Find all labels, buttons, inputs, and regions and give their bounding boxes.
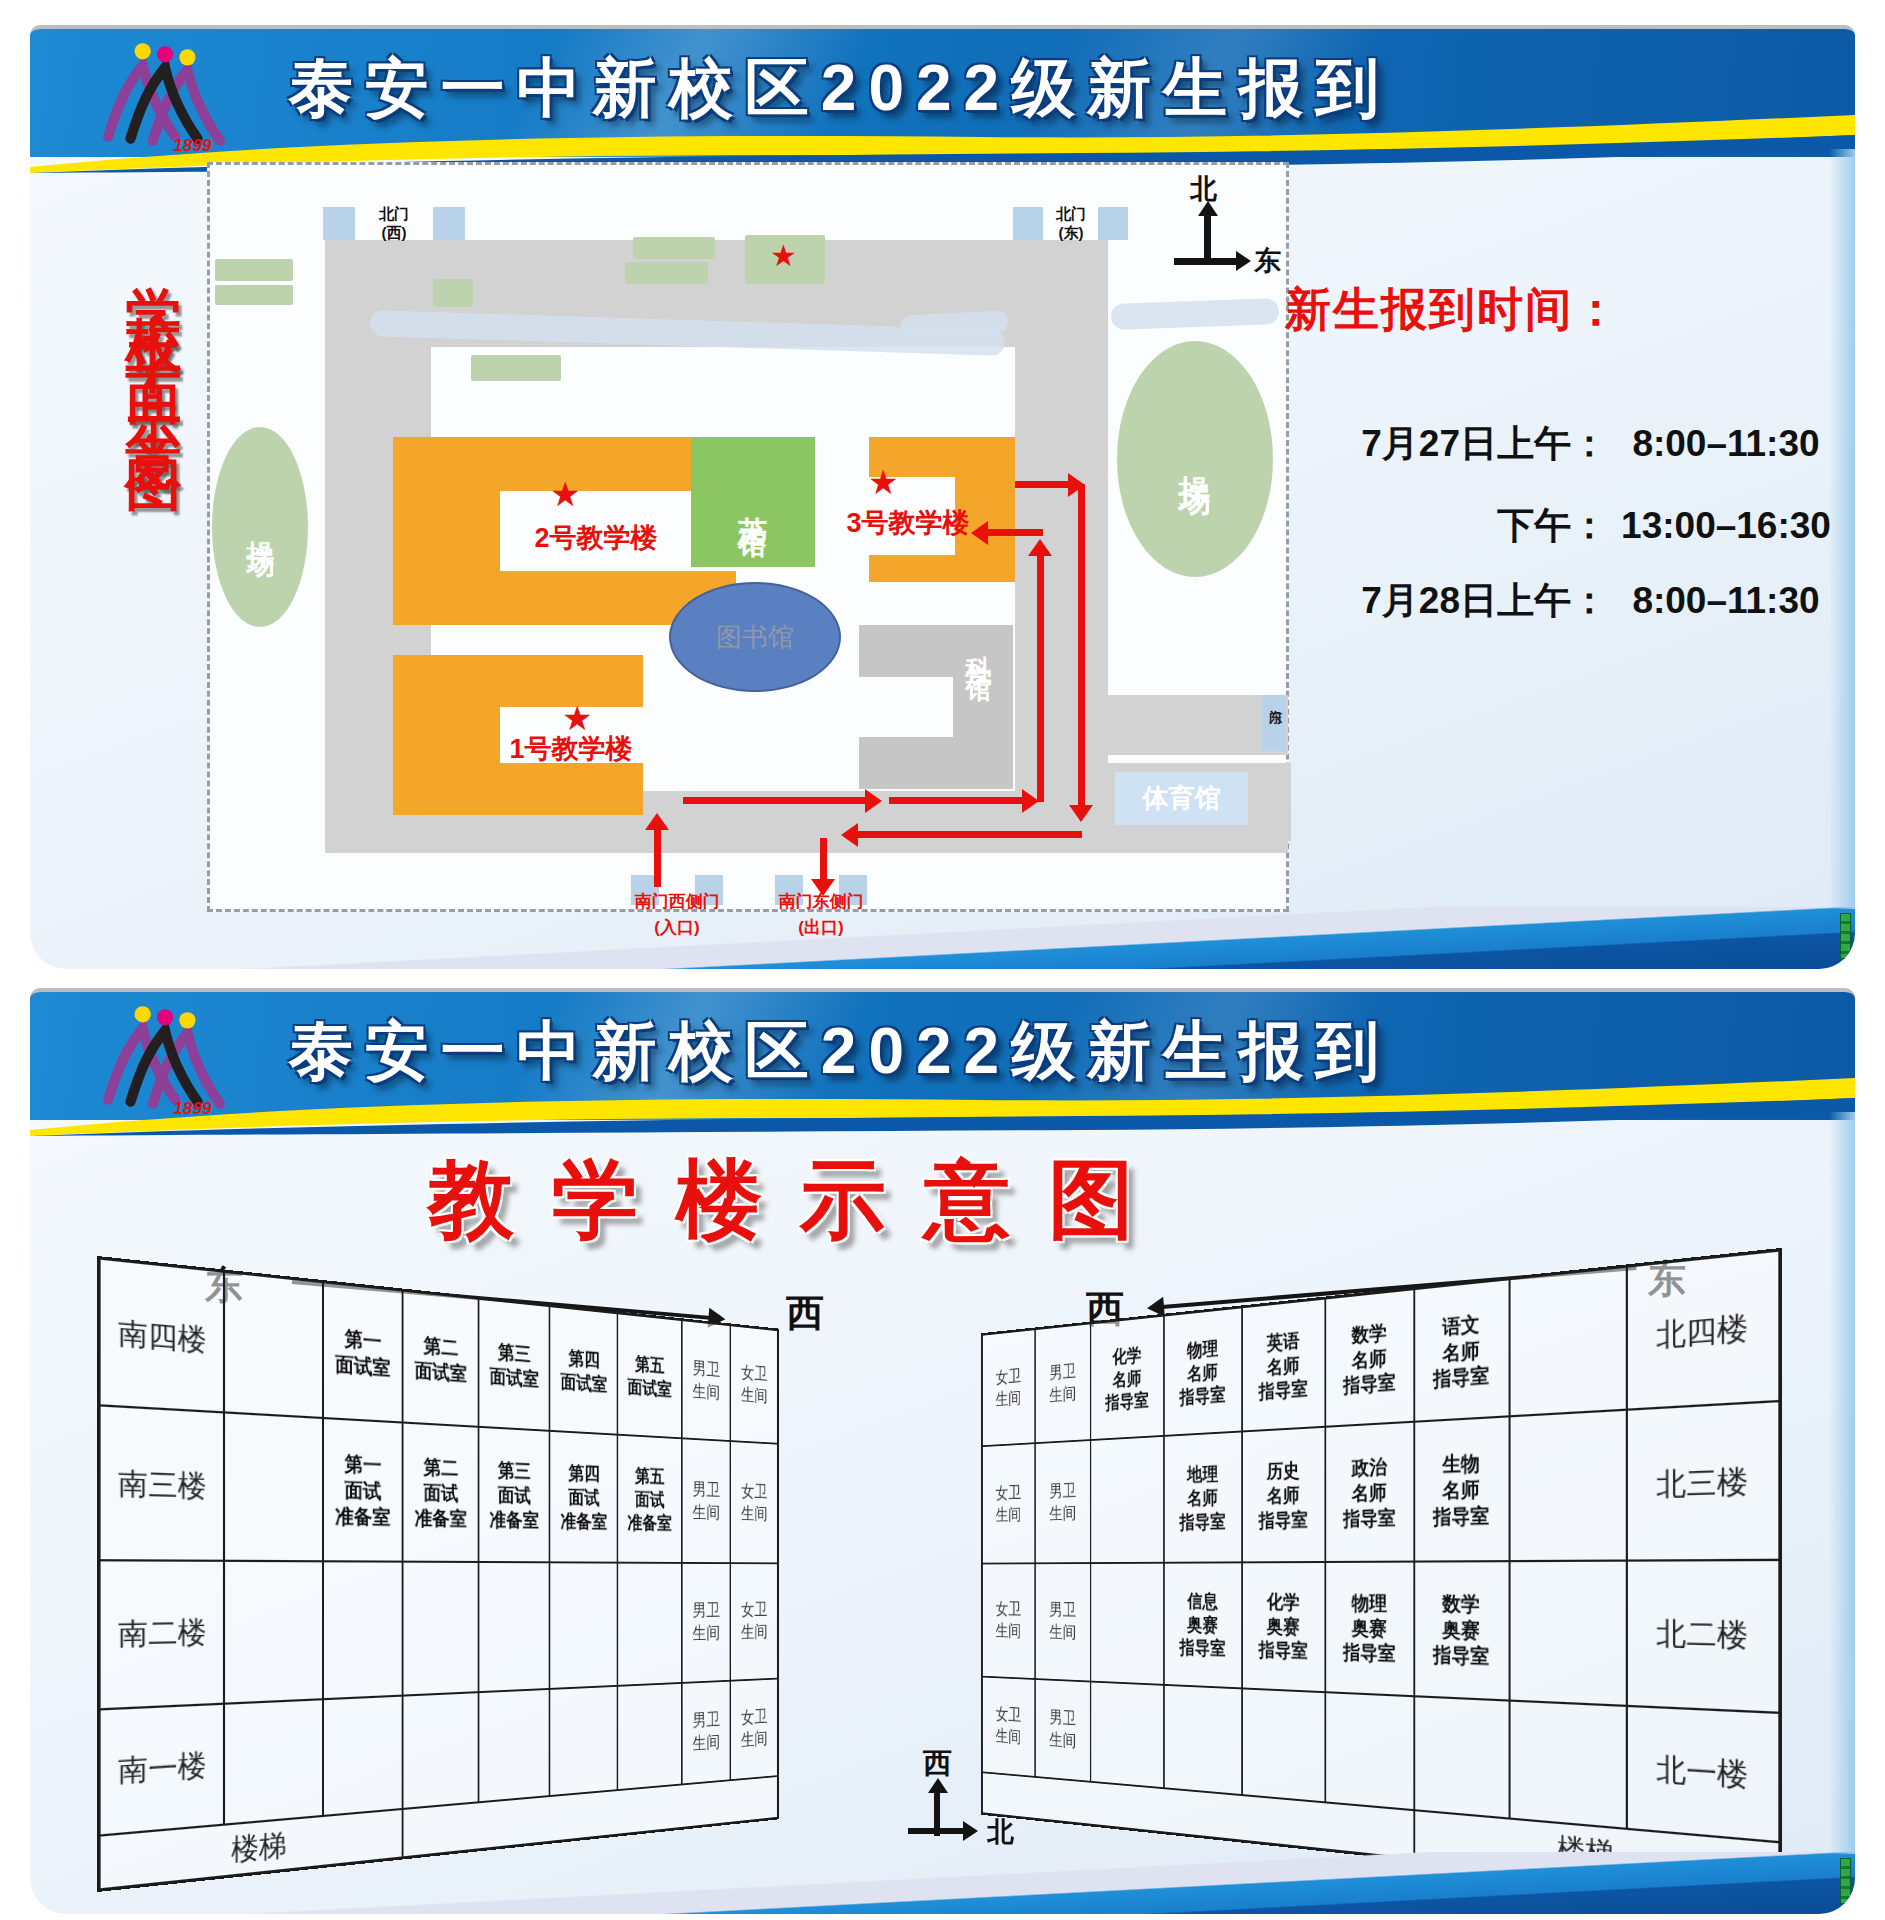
- table-cell: [224, 1412, 322, 1561]
- table-cell: 英语 名师 指导室: [1242, 1299, 1325, 1432]
- science-hall: [859, 737, 1013, 789]
- table-cell: 物理 奥赛 指导室: [1325, 1562, 1414, 1697]
- building-1: [500, 763, 643, 815]
- table-cell: 化学 名师 指导室: [1091, 1316, 1164, 1440]
- schedule-row: 7月27日上午： 8:00–11:30: [1288, 419, 1848, 469]
- table-cell: [1509, 1701, 1627, 1829]
- route-arrow: [889, 797, 1022, 804]
- compass-east-label: 东: [1254, 243, 1281, 279]
- teaching-building-board: 1899 泰安一中新校区2022级新生报到 教学楼示意图 东 西 西 东 南四楼…: [30, 988, 1855, 1914]
- header-swoosh: [30, 1076, 1855, 1136]
- table-cell: 历史 名师 指导室: [1242, 1427, 1325, 1563]
- route-arrow-exit: [820, 838, 827, 881]
- table-cell: 男卫 生间: [682, 1438, 731, 1563]
- table-cell: 物理 名师 指导室: [1164, 1307, 1242, 1436]
- table-cell: 第二 面试 准备室: [403, 1423, 479, 1562]
- table-cell: 男卫 生间: [1035, 1440, 1091, 1563]
- table-cell: 信息 奥赛 指导室: [1164, 1562, 1242, 1688]
- playground-east: 操场: [1117, 341, 1273, 577]
- table-cell: [1414, 1696, 1509, 1818]
- route-arrow-into-building3: [988, 529, 1043, 536]
- route-arrow-down: [1078, 484, 1085, 805]
- playground-west-label: 操场: [241, 519, 279, 536]
- compass-right-arrow-icon: [1174, 258, 1236, 265]
- table-cell: [323, 1561, 403, 1699]
- table-cell: 女卫 生间: [982, 1563, 1035, 1679]
- schedule-time: 8:00–11:30: [1608, 580, 1844, 622]
- table-cell: 女卫 生间: [731, 1563, 778, 1681]
- west-label-left: 西: [786, 1288, 824, 1339]
- route-arrowhead: [865, 789, 882, 813]
- schedule-row: 7月28日上午： 8:00–11:30: [1288, 576, 1848, 626]
- route-arrow: [858, 831, 1082, 838]
- compass-up-arrow-icon: [1198, 201, 1218, 216]
- table-cell: [224, 1699, 322, 1824]
- star-icon: ★: [550, 477, 580, 511]
- map-side-title: 学校平面示意图: [116, 241, 192, 901]
- table-cell: 男卫 生间: [682, 1681, 731, 1785]
- table-cell: 男卫 生间: [1035, 1323, 1091, 1443]
- board-footer: [30, 1852, 1855, 1914]
- route-arrow-up: [1037, 555, 1044, 802]
- table-cell: 女卫 生间: [731, 1325, 778, 1443]
- river: [1111, 298, 1280, 330]
- green-block: [433, 279, 473, 307]
- table-cell: [1091, 1563, 1164, 1685]
- green-block: [625, 262, 708, 284]
- table-cell: 语文 名师 指导室: [1414, 1279, 1509, 1422]
- table-cell: 第一 面试室: [323, 1282, 403, 1422]
- table-cell: 北二楼: [1627, 1560, 1779, 1713]
- star-icon: ★: [770, 241, 797, 271]
- science-hall-label: 科学馆: [962, 635, 997, 662]
- table-cell: [617, 1563, 681, 1686]
- building-1-label: 1号教学楼: [481, 731, 661, 767]
- schedule-time: 8:00–11:30: [1608, 423, 1844, 465]
- table-cell: [1091, 1436, 1164, 1563]
- art-hall: 艺术馆: [691, 437, 815, 567]
- star-icon: ★: [562, 701, 592, 735]
- table-cell: 第一 面试 准备室: [323, 1418, 403, 1562]
- board-header: 1899 泰安一中新校区2022级新生报到: [30, 992, 1855, 1120]
- table-cell: [1325, 1692, 1414, 1810]
- star-icon: ★: [868, 465, 898, 499]
- table-cell: [478, 1562, 549, 1692]
- gymnasium-label: 体育馆: [1143, 781, 1221, 816]
- east-gate: [1262, 695, 1286, 751]
- green-block: [471, 355, 561, 381]
- table-cell: 北四楼: [1627, 1250, 1779, 1409]
- table-cell: 男卫 生间: [1035, 1563, 1091, 1681]
- art-hall-label: 艺术馆: [733, 493, 773, 510]
- table-cell: 地理 名师 指导室: [1164, 1431, 1242, 1562]
- compass-north-label: 北: [987, 1814, 1014, 1850]
- route-arrowhead: [645, 813, 669, 830]
- table-cell: 北一楼: [1627, 1706, 1779, 1842]
- table-cell: [1509, 1267, 1627, 1417]
- table-cell: 第四 面试室: [550, 1306, 618, 1434]
- table-cell: 南四楼: [99, 1259, 224, 1413]
- table-cell: 第三 面试室: [478, 1299, 549, 1431]
- route-arrowhead: [1028, 539, 1052, 556]
- table-cell: 男卫 生间: [682, 1563, 731, 1683]
- table-cell: [478, 1689, 549, 1802]
- library: 图书馆: [669, 582, 841, 692]
- table-cell: [1509, 1561, 1627, 1706]
- table-cell: 第五 面试室: [617, 1313, 681, 1438]
- route-arrowhead: [811, 879, 835, 896]
- table-cell: 女卫 生间: [982, 1443, 1035, 1563]
- route-arrowhead: [971, 521, 988, 545]
- table-cell: 女卫 生间: [982, 1329, 1035, 1446]
- table-cell: 生物 名师 指导室: [1414, 1416, 1509, 1561]
- north-east-gate-label: 北门 (东): [1037, 205, 1105, 243]
- building-2-label: 2号教学楼: [506, 520, 686, 556]
- table-cell: 南一楼: [99, 1704, 224, 1836]
- schedule-title: 新生报到时间：: [1285, 279, 1855, 341]
- table-cell: [550, 1562, 618, 1689]
- table-cell: 南三楼: [99, 1405, 224, 1560]
- route-arrow-out-building3: [1015, 481, 1068, 488]
- table-cell: 数学 奥赛 指导室: [1414, 1561, 1509, 1700]
- table-cell: 女卫 生间: [731, 1441, 778, 1563]
- table-cell: [403, 1692, 479, 1809]
- table-cell: 第四 面试 准备室: [550, 1431, 618, 1563]
- table-cell: [224, 1561, 322, 1704]
- compass-right-arrow-icon: [963, 1821, 978, 1841]
- green-bar: [1840, 913, 1851, 959]
- road-east-gate-stub: [1108, 695, 1288, 755]
- building-2: [393, 437, 500, 625]
- compass-right-arrow-icon: [908, 1828, 963, 1834]
- table-cell: 男卫 生间: [1035, 1679, 1091, 1782]
- table-cell: [224, 1272, 322, 1418]
- campus-map: ★ 北门 (西) 北门 (东) 操场 操场 ★ 2号教学楼 艺术馆 ★ 3号教学…: [207, 162, 1289, 912]
- table-cell: 数学 名师 指导室: [1325, 1289, 1414, 1427]
- route-arrowhead: [841, 823, 858, 847]
- table-cell: [1091, 1682, 1164, 1789]
- table-cell: 女卫 生间: [731, 1679, 778, 1781]
- table-cell: 第三 面试 准备室: [478, 1427, 549, 1563]
- table-cell: [1164, 1685, 1242, 1795]
- board-header: 1899 泰安一中新校区2022级新生报到: [30, 29, 1855, 157]
- table-cell: [617, 1683, 681, 1790]
- compass-right-arrow-icon: [1236, 251, 1251, 271]
- route-arrow: [683, 797, 865, 804]
- table-cell: 化学 奥赛 指导室: [1242, 1562, 1325, 1692]
- playground-east-label: 操场: [1173, 449, 1217, 468]
- table-cell: 北三楼: [1627, 1401, 1779, 1561]
- table-cell: [550, 1686, 618, 1796]
- north-west-gate: [323, 207, 355, 240]
- campus-map-board: 1899 泰安一中新校区2022级新生报到 学校平面示意图 ★ 北门: [30, 25, 1855, 969]
- table-cell: [403, 1562, 479, 1696]
- schedule-time: 13:00–16:30: [1608, 505, 1844, 547]
- south-building-table: 南四楼第一 面试室第二 面试室第三 面试室第四 面试室第五 面试室男卫 生间女卫…: [97, 1256, 779, 1892]
- green-block: [633, 237, 715, 259]
- library-label: 图书馆: [716, 620, 794, 655]
- route-arrowhead: [1069, 805, 1093, 822]
- green-block: [215, 285, 293, 305]
- table-cell: 第五 面试 准备室: [617, 1435, 681, 1563]
- table-cell: 男卫 生间: [682, 1320, 731, 1441]
- schedule-label: 7月27日上午：: [1288, 419, 1608, 469]
- diagram-title: 教学楼示意图: [210, 1142, 1390, 1259]
- table-cell: [323, 1696, 403, 1816]
- north-west-gate: [433, 207, 465, 240]
- table-cell: 女卫 生间: [982, 1677, 1035, 1777]
- schedule-label: 下午：: [1288, 501, 1608, 551]
- table-cell: 政治 名师 指导室: [1325, 1422, 1414, 1562]
- playground-west: 操场: [212, 427, 308, 627]
- schedule-row: 下午： 13:00–16:30: [1288, 501, 1848, 551]
- green-block: [215, 259, 293, 281]
- green-bar: [1840, 1858, 1851, 1904]
- table-cell: 第二 面试室: [403, 1291, 479, 1427]
- north-west-gate-label: 北门 (西): [360, 205, 428, 243]
- schedule-label: 7月28日上午：: [1288, 576, 1608, 626]
- north-building-table: 女卫 生间男卫 生间化学 名师 指导室物理 名师 指导室英语 名师 指导室数学 …: [981, 1248, 1782, 1900]
- bulletin-page: { "colors":{ "accent_red":"#e8100c", "bu…: [0, 0, 1885, 1920]
- route-arrow-enter: [654, 829, 661, 887]
- gymnasium: 体育馆: [1115, 772, 1248, 825]
- compass-up-arrow-icon: [928, 1778, 948, 1793]
- table-cell: [1509, 1410, 1627, 1561]
- table-cell: 南二楼: [99, 1560, 224, 1709]
- table-cell: [1242, 1688, 1325, 1802]
- board-footer: [30, 907, 1855, 969]
